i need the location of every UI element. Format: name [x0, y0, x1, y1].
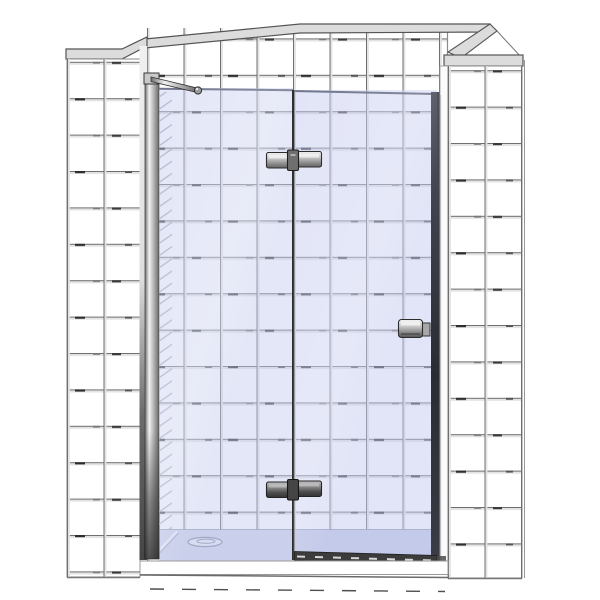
handle-top-highlight [401, 322, 420, 326]
bottom-hinge-right-highlight [299, 484, 319, 487]
right-pilaster-cap [444, 55, 523, 66]
bottom-hinge-left-highlight [269, 485, 289, 488]
top-hinge-right-highlight [299, 154, 319, 158]
top-hinge-left-highlight [269, 155, 289, 159]
left-pilaster-cap [66, 37, 147, 59]
top-hinge [267, 150, 322, 171]
top-hinge-clamp-detail [291, 154, 296, 156]
cap-edge-line [497, 31, 521, 57]
product-render-canvas: 3D product render: frameless glass showe… [0, 0, 600, 600]
support-bar-knob [194, 87, 201, 94]
bottom-hinge [267, 480, 322, 501]
right-jamb-strip [440, 66, 448, 570]
left-pilaster-ticks [67, 59, 140, 577]
tray-front-bottom-edge [140, 575, 448, 578]
bottom-hinge-right-plate [297, 481, 322, 497]
floor-line [150, 589, 445, 592]
left-pilaster [66, 37, 147, 578]
support-bar-knob-highlight [196, 88, 198, 90]
shower-door-render: 3D product render: frameless glass showe… [0, 0, 600, 600]
top-hinge-right-plate [297, 152, 322, 168]
right-pilaster-ticks [448, 66, 522, 578]
right-pilaster [440, 55, 525, 579]
wall-profile-group [144, 73, 160, 559]
bottom-hinge-clamp [288, 480, 299, 501]
wall-profile-shadow [144, 430, 160, 559]
tray-front-face [140, 561, 448, 575]
top-hinge-clamp [288, 150, 299, 171]
